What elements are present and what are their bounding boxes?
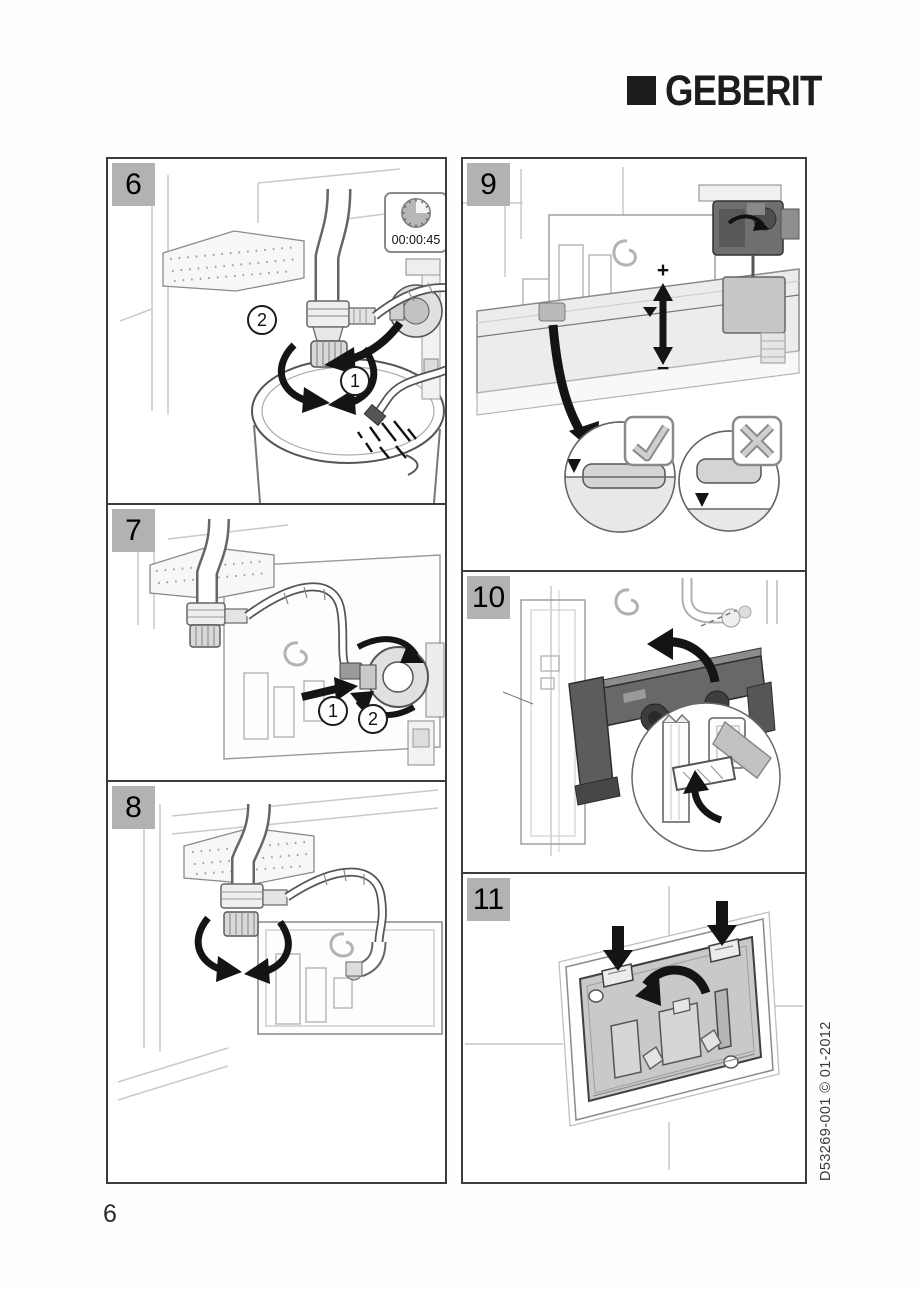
concrete-block — [163, 231, 304, 291]
logo-square-icon — [627, 76, 656, 105]
panel-step-11: 11 — [463, 874, 805, 1182]
callout-2-badge: 2 — [358, 704, 388, 734]
timer-value: 00:00:45 — [386, 233, 445, 247]
overflow-marker — [539, 303, 565, 321]
plus-label: + — [651, 259, 675, 283]
page-number: 6 — [103, 1200, 117, 1229]
panel-step-9: 9 — [463, 159, 805, 572]
illustration-mount-frame — [463, 572, 805, 872]
cross-icon — [733, 417, 781, 465]
callout-1-badge: 1 — [340, 366, 370, 396]
step-number-badge: 6 — [112, 163, 155, 206]
background-fittings — [616, 578, 751, 627]
left-panel-column: 6 — [106, 157, 447, 1184]
geberit-logo: GEBERIT — [627, 70, 849, 113]
step-number-badge: 10 — [467, 576, 510, 619]
step-number-badge: 8 — [112, 786, 155, 829]
panel-step-8: 8 — [108, 782, 445, 1182]
panel-step-7: 7 — [108, 505, 445, 782]
step-number-badge: 9 — [467, 163, 510, 206]
elbow-pipe — [307, 189, 375, 367]
illustration-open-water-valve — [108, 782, 445, 1182]
right-panel-column: 9 — [461, 157, 807, 1184]
minus-label: − — [651, 357, 675, 381]
callout-2-badge: 2 — [247, 305, 277, 335]
step-number-badge: 11 — [467, 878, 510, 921]
clock-icon — [396, 196, 436, 230]
illustration-connect-hose-to-valve — [108, 505, 445, 780]
step-number-badge: 7 — [112, 509, 155, 552]
document-code: D53269-001 © 01-2012 — [818, 1009, 836, 1181]
logo-text: GEBERIT — [665, 70, 822, 113]
illustration-install-cover-plate — [463, 874, 805, 1180]
latch-detail-circle — [632, 703, 780, 851]
manual-page: GEBERIT 6 — [0, 0, 920, 1289]
panel-step-10: 10 — [463, 572, 805, 874]
illustration-water-level-check — [463, 159, 805, 570]
timer-badge: 00:00:45 — [384, 192, 445, 253]
panel-step-6: 6 — [108, 159, 445, 505]
checkmark-icon — [625, 417, 673, 465]
callout-1-badge: 1 — [318, 696, 348, 726]
